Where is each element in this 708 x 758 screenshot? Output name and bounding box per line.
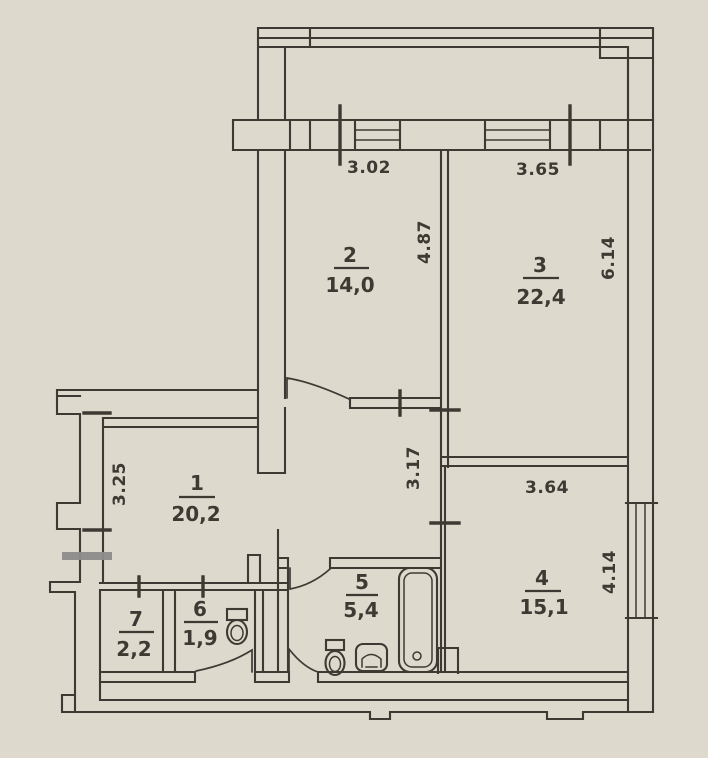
room-2-area: 14,0: [325, 273, 374, 297]
floor-plan-svg: 3.02 3.65 4.87 6.14 3.25 3.17 3.64 4.14 …: [0, 0, 708, 758]
room-5-area: 5,4: [343, 598, 378, 622]
dim-top-window-left: 3.02: [347, 158, 391, 178]
room-6-area: 1,9: [182, 626, 217, 650]
dim-hall-depth: 3.17: [404, 446, 424, 490]
room-7-area: 2,2: [116, 637, 151, 661]
room-1-number: 1: [190, 471, 204, 495]
floor-plan-page: 3.02 3.65 4.87 6.14 3.25 3.17 3.64 4.14 …: [0, 0, 708, 758]
dim-room1-left: 3.25: [110, 462, 130, 506]
paper-background: [0, 0, 708, 758]
room-7-number: 7: [129, 607, 143, 631]
dim-room4-width: 3.64: [525, 478, 569, 498]
room-6-number: 6: [193, 597, 207, 621]
room-4-area: 15,1: [519, 595, 568, 619]
room-2-number: 2: [343, 243, 357, 267]
room-5-number: 5: [355, 570, 369, 594]
room-1-area: 20,2: [171, 502, 220, 526]
dim-room4-depth: 4.14: [600, 550, 620, 594]
room-4-number: 4: [535, 566, 549, 590]
room-3-area: 22,4: [516, 285, 565, 309]
room-3-number: 3: [533, 253, 547, 277]
dim-top-window-right: 3.65: [516, 160, 560, 180]
dim-room2-depth: 4.87: [415, 220, 435, 264]
dim-room3-depth: 6.14: [599, 236, 619, 280]
